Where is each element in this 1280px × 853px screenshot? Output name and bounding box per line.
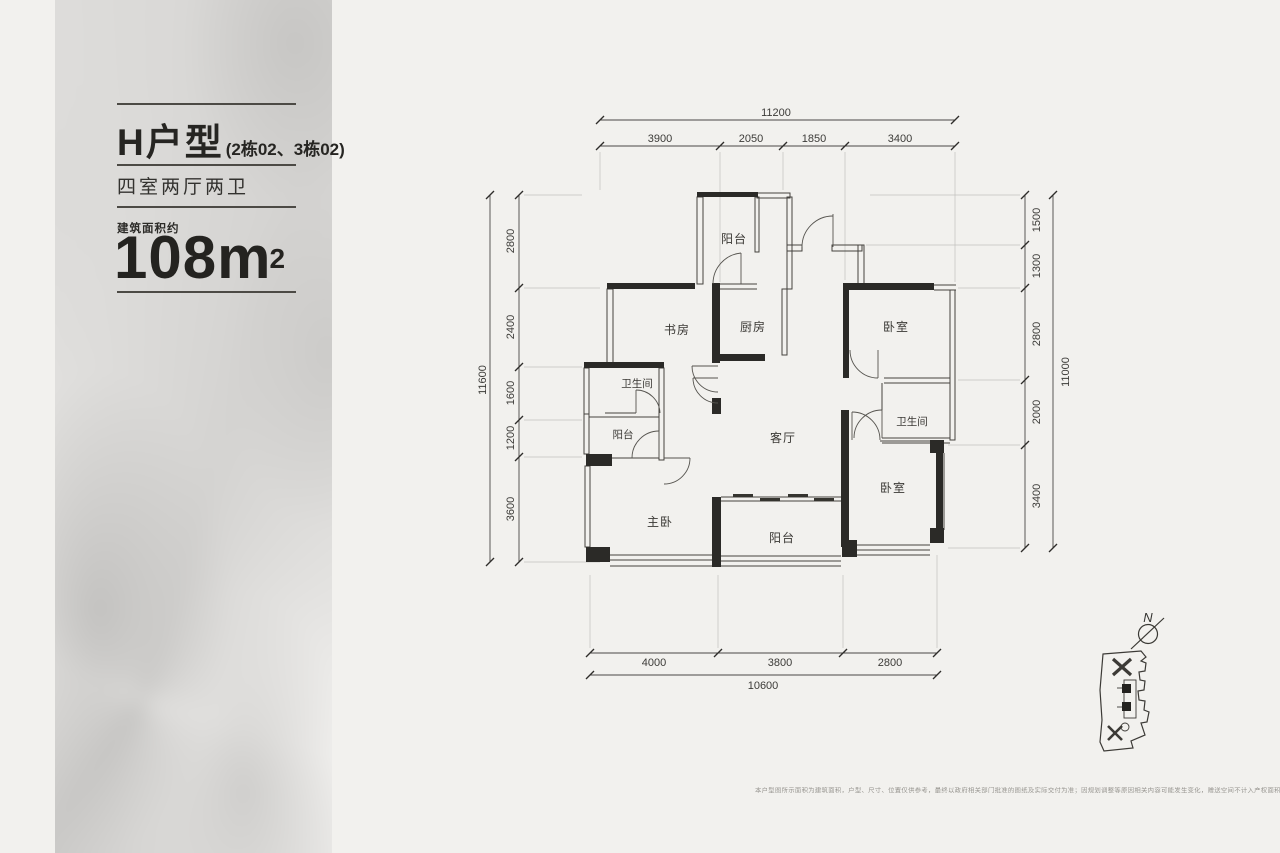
dim-left-seg-3: 1600 <box>505 381 517 405</box>
dim-right-seg-3: 2800 <box>1031 322 1043 346</box>
dimension-lines <box>490 120 1053 675</box>
site-marker-bottom <box>1108 726 1122 740</box>
dim-top-total: 11200 <box>761 107 791 119</box>
unit-type-title: H户型 <box>117 112 224 166</box>
room-label-bath-right: 卫生间 <box>896 415 928 428</box>
floorplan-poster: { "panel": { "type_title": "H户型", "type_… <box>0 0 1280 853</box>
dim-bottom-total: 10600 <box>748 680 779 692</box>
site-marker-top <box>1113 659 1131 675</box>
dim-top-seg-1: 3900 <box>648 133 672 145</box>
room-label-bedroom-top-right: 卧室 <box>883 319 909 334</box>
room-layout-label: 四室两厅两卫 <box>117 172 249 199</box>
area-superscript: 2 <box>269 243 285 274</box>
dim-left-seg-5: 3600 <box>505 497 517 521</box>
floor-plan: 11200 3900 2050 1850 3400 11600 2800 240… <box>470 85 1190 805</box>
dim-right-seg-4: 2000 <box>1031 400 1043 424</box>
unit-type-buildings: (2栋02、3栋02) <box>226 135 345 160</box>
dim-left-seg-2: 2400 <box>505 315 517 339</box>
divider-rule-1 <box>117 103 296 105</box>
floor-plan-svg: 11200 3900 2050 1850 3400 11600 2800 240… <box>470 85 1190 805</box>
dim-right-seg-1: 1500 <box>1031 208 1043 232</box>
room-label-living: 客厅 <box>770 430 796 445</box>
dim-top-seg-4: 3400 <box>888 133 912 145</box>
dim-bottom-seg-3: 2800 <box>878 657 902 669</box>
dim-bottom-seg-2: 3800 <box>768 657 792 669</box>
dim-right-seg-5: 3400 <box>1031 484 1043 508</box>
disclaimer-text: 本户型图所示面积为建筑面积，户型、尺寸、位置仅供参考，最终以政府相关部门批准的图… <box>755 786 1169 795</box>
site-unit-marker-2 <box>1122 702 1131 711</box>
divider-rule-4 <box>117 291 296 293</box>
divider-rule-3 <box>117 206 296 208</box>
unit-type-title-row: H户型 (2栋02、3栋02) <box>117 112 345 166</box>
room-label-balcony-top: 阳台 <box>721 231 747 246</box>
room-label-master: 主卧 <box>647 515 673 529</box>
room-label-bedroom-bottom-right: 卧室 <box>880 480 906 495</box>
site-unit-marker-1 <box>1122 684 1131 693</box>
room-label-study: 书房 <box>664 322 690 337</box>
area-value: 108m2 <box>114 228 287 288</box>
dim-top-seg-3: 1850 <box>802 133 826 145</box>
dim-right-seg-2: 1300 <box>1031 254 1043 278</box>
room-label-balcony-left: 阳台 <box>613 428 634 441</box>
room-label-kitchen: 厨房 <box>740 319 766 334</box>
room-label-balcony-bottom: 阳台 <box>769 530 795 545</box>
witness-lines <box>524 152 1020 648</box>
dim-left-seg-4: 1200 <box>505 426 517 450</box>
room-labels: 阳台 书房 厨房 卧室 卫生间 阳台 客厅 卫生间 主卧 阳台 卧室 <box>613 231 928 545</box>
dim-top-seg-2: 2050 <box>739 133 763 145</box>
divider-rule-2 <box>117 164 296 166</box>
dim-right-total: 11000 <box>1060 357 1072 387</box>
north-arrow: N <box>1131 610 1164 649</box>
site-key <box>1100 651 1149 751</box>
dim-left-seg-1: 2800 <box>505 229 517 253</box>
dim-bottom-seg-1: 4000 <box>642 657 666 669</box>
dim-left-total: 11600 <box>477 365 489 395</box>
north-label: N <box>1143 610 1153 625</box>
area-number: 108m <box>114 224 271 291</box>
dimension-ticks <box>486 116 1057 679</box>
room-label-bath-left: 卫生间 <box>621 377 653 390</box>
